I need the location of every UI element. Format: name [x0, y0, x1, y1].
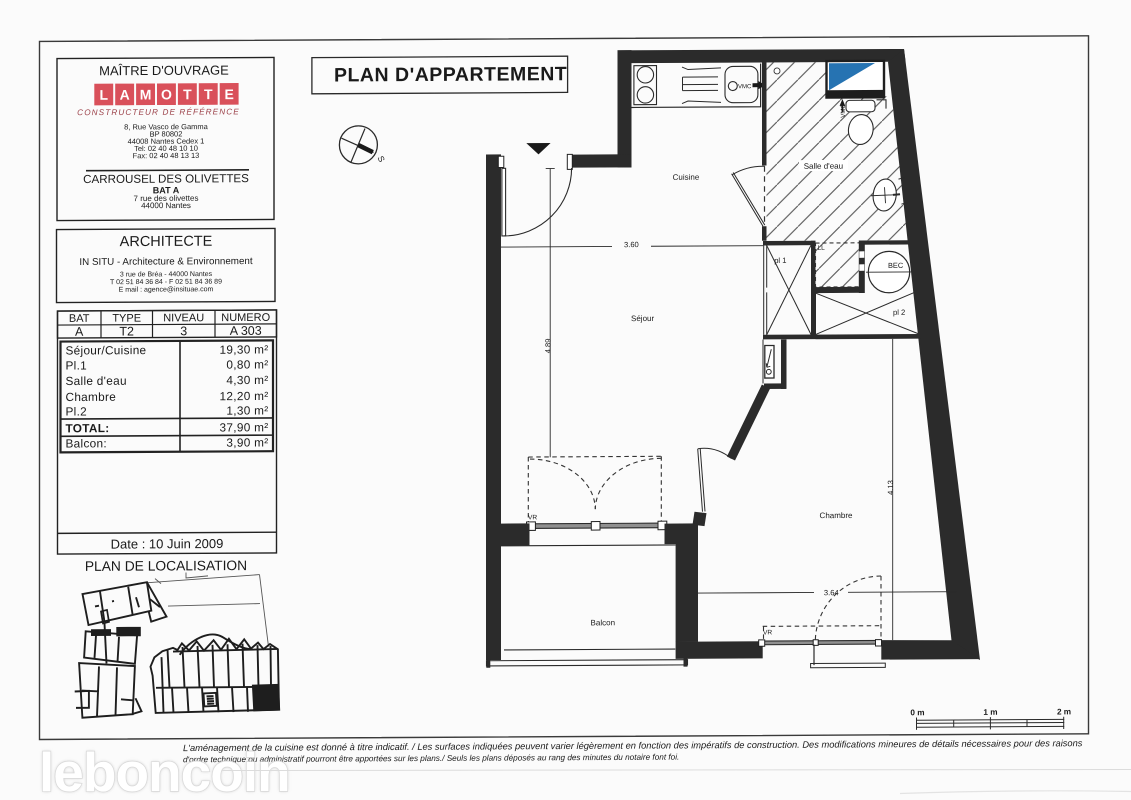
svg-text:A: A: [75, 325, 84, 339]
svg-text:Salle d'eau: Salle d'eau: [804, 162, 843, 171]
svg-text:T2: T2: [119, 324, 134, 338]
svg-text:Chambre: Chambre: [66, 390, 117, 404]
svg-text:Pl.2: Pl.2: [66, 404, 88, 418]
svg-text:1,30 m²: 1,30 m²: [226, 403, 268, 417]
svg-text:PLAN D'APPARTEMENT: PLAN D'APPARTEMENT: [334, 63, 567, 86]
svg-text:19,30 m²: 19,30 m²: [220, 342, 269, 356]
svg-text:A: A: [120, 87, 130, 103]
svg-text:S: S: [376, 154, 388, 164]
svg-text:4,30 m²: 4,30 m²: [226, 373, 268, 387]
svg-text:A 303: A 303: [230, 324, 262, 338]
svg-text:PLAN DE LOCALISATION: PLAN DE LOCALISATION: [85, 558, 247, 574]
svg-text:Balcon:: Balcon:: [66, 436, 107, 450]
svg-text:0,80 m²: 0,80 m²: [226, 357, 268, 371]
svg-text:L'aménagement de la cuisine es: L'aménagement de la cuisine est donné à …: [183, 738, 1083, 753]
svg-text:T: T: [183, 86, 192, 102]
svg-text:BEC: BEC: [888, 261, 904, 270]
svg-text:T: T: [204, 86, 213, 102]
svg-text:T 02 51 84 36 84 - F 02 51 84: T 02 51 84 36 84 - F 02 51 84 36 89: [110, 279, 222, 287]
svg-text:3.64: 3.64: [824, 588, 839, 597]
svg-text:VMC: VMC: [738, 84, 752, 90]
svg-text:LL: LL: [818, 245, 826, 252]
svg-text:2 m: 2 m: [1057, 707, 1071, 716]
svg-text:44000 Nantes: 44000 Nantes: [141, 201, 191, 210]
svg-text:CONSTRUCTEUR DE RÉFÉRENCE: CONSTRUCTEUR DE RÉFÉRENCE: [77, 106, 240, 117]
svg-text:M: M: [140, 86, 152, 102]
svg-text:NUMERO: NUMERO: [221, 312, 270, 324]
svg-text:MAÎTRE D'OUVRAGE: MAÎTRE D'OUVRAGE: [99, 63, 229, 79]
svg-text:Fax: 02 40 48 13 13: Fax: 02 40 48 13 13: [133, 151, 200, 160]
svg-text:TYPE: TYPE: [112, 313, 141, 325]
svg-text:Cuisine: Cuisine: [673, 173, 700, 182]
svg-text:TOTAL:: TOTAL:: [66, 421, 110, 435]
svg-text:IN SITU - Architecture & Envir: IN SITU - Architecture & Environnement: [79, 256, 252, 268]
svg-text:Séjour: Séjour: [631, 314, 654, 323]
svg-text:BAT: BAT: [69, 313, 90, 325]
svg-text:VR: VR: [528, 514, 537, 521]
svg-text:Pl.1: Pl.1: [66, 358, 88, 372]
svg-text:12,20 m²: 12,20 m²: [220, 389, 269, 403]
svg-text:3.60: 3.60: [624, 240, 639, 249]
svg-text:Balcon: Balcon: [591, 618, 615, 627]
svg-text:Date : 10 Juin 2009: Date : 10 Juin 2009: [111, 536, 224, 552]
svg-text:Séjour/Cuisine: Séjour/Cuisine: [66, 343, 147, 357]
svg-text:NIVEAU: NIVEAU: [163, 312, 204, 324]
svg-text:3: 3: [180, 324, 187, 338]
svg-text:4.13: 4.13: [886, 480, 895, 495]
svg-text:O: O: [161, 86, 172, 102]
svg-text:VR: VR: [763, 629, 772, 636]
svg-text:pl 2: pl 2: [893, 308, 905, 317]
svg-text:L: L: [100, 87, 109, 103]
svg-text:ARCHITECTE: ARCHITECTE: [120, 234, 213, 251]
svg-text:Salle d'eau: Salle d'eau: [66, 374, 127, 388]
svg-text:E: E: [225, 86, 234, 102]
svg-text:E mail : agence@insituae.com: E mail : agence@insituae.com: [119, 286, 214, 294]
svg-text:37,90 m²: 37,90 m²: [220, 420, 269, 434]
svg-text:CARROUSEL DES OLIVETTES: CARROUSEL DES OLIVETTES: [83, 172, 249, 186]
svg-text:0 m: 0 m: [910, 708, 924, 717]
svg-text:pl 1: pl 1: [774, 256, 786, 265]
svg-text:Chambre: Chambre: [820, 511, 853, 520]
svg-text:1 m: 1 m: [983, 708, 997, 717]
svg-text:3,90 m²: 3,90 m²: [226, 435, 268, 449]
svg-text:3 rue de Bréa - 44000 Nantes: 3 rue de Bréa - 44000 Nantes: [120, 271, 213, 279]
svg-text:4.89: 4.89: [544, 339, 553, 354]
